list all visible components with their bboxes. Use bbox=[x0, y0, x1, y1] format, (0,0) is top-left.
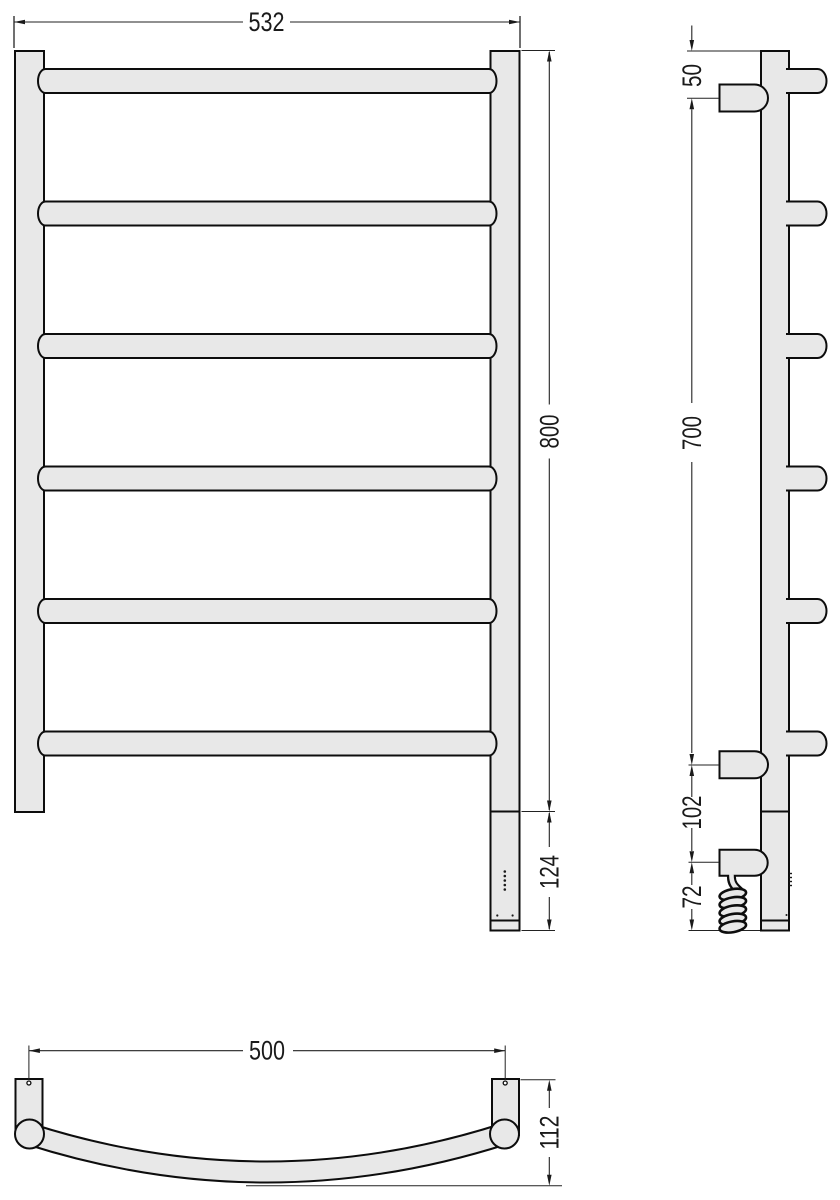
svg-text:800: 800 bbox=[534, 415, 564, 449]
svg-text:700: 700 bbox=[677, 416, 707, 450]
svg-text:500: 500 bbox=[249, 1036, 285, 1066]
svg-text:50: 50 bbox=[677, 64, 707, 87]
svg-text:102: 102 bbox=[677, 796, 707, 830]
svg-text:72: 72 bbox=[677, 886, 707, 909]
svg-text:532: 532 bbox=[249, 7, 285, 37]
svg-text:124: 124 bbox=[534, 855, 564, 889]
svg-text:112: 112 bbox=[534, 1116, 564, 1150]
